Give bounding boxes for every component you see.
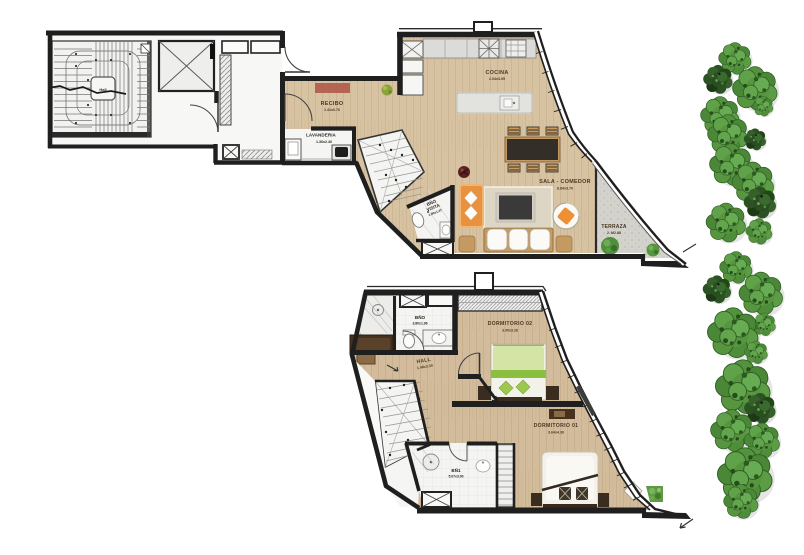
svg-text:DORMITORIO 01: DORMITORIO 01 — [534, 423, 579, 429]
svg-text:3.80x1.96: 3.80x1.96 — [412, 322, 427, 326]
svg-text:1.41x0.76: 1.41x0.76 — [324, 108, 340, 112]
svg-text:SALA - COMEDOR: SALA - COMEDOR — [539, 179, 591, 185]
svg-text:LAVANDERIA: LAVANDERIA — [306, 133, 336, 138]
svg-text:3.00x3.26: 3.00x3.26 — [502, 329, 518, 333]
svg-text:DORMITORIO 02: DORMITORIO 02 — [488, 321, 533, 327]
svg-text:2.04x3.05: 2.04x3.05 — [489, 77, 505, 81]
svg-text:BÑ1: BÑ1 — [451, 467, 461, 473]
svg-text:COCINA: COCINA — [485, 70, 508, 76]
svg-text:1.30x2.40: 1.30x2.40 — [316, 140, 332, 144]
svg-text:RECIBO: RECIBO — [321, 101, 344, 107]
svg-text:3.64x4.30: 3.64x4.30 — [548, 431, 564, 435]
svg-text:BÑO: BÑO — [415, 314, 426, 320]
svg-text:TERRAZA: TERRAZA — [601, 224, 626, 230]
svg-text:8.84x3.70: 8.84x3.70 — [557, 187, 573, 191]
svg-text:2. M2.88: 2. M2.88 — [607, 231, 621, 235]
svg-text:5.07x3.00: 5.07x3.00 — [448, 475, 463, 479]
